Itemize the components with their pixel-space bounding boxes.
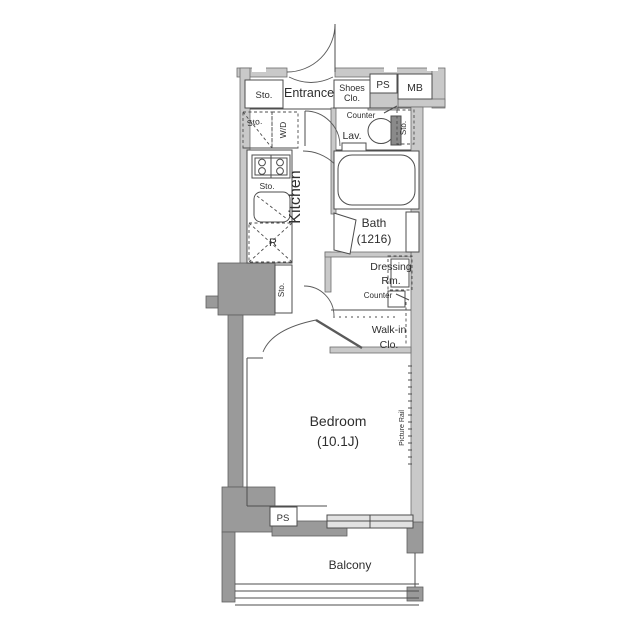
bathtub-outer xyxy=(334,151,419,209)
balcony-label: Balcony xyxy=(329,558,372,572)
entrance-threshold-curve xyxy=(289,77,333,83)
pillar-right-balcony xyxy=(407,587,423,601)
walkin-label-1: Walk-in xyxy=(372,324,407,336)
bath-size-label: (1216) xyxy=(357,232,392,246)
bath-label: Bath xyxy=(362,216,387,230)
walkin-bottom-wall xyxy=(330,347,411,353)
ps-bottom-label: PS xyxy=(277,513,290,524)
dressing-top-wall xyxy=(325,252,411,257)
dressing-counter-label: Counter xyxy=(364,291,393,300)
bedroom-label: Bedroom xyxy=(310,413,367,429)
shoes-closet-label-1: Shoes xyxy=(339,83,365,93)
picture-rail-label: Picture Rail xyxy=(399,410,406,446)
wall-notch xyxy=(384,66,397,72)
pillar-left-notch xyxy=(206,296,218,308)
wall-notch xyxy=(427,66,438,71)
ps-top-label: PS xyxy=(376,80,390,91)
mb-bottom-wall xyxy=(398,99,445,107)
lav-label: Lav. xyxy=(342,130,361,142)
fridge-label: R xyxy=(269,237,277,249)
bedroom-size-label: (10.1J) xyxy=(317,434,359,449)
storage-kitchen-label: Sto. xyxy=(259,181,274,191)
mb-label: MB xyxy=(407,82,423,94)
walkin-door-arc xyxy=(263,320,316,352)
pillars xyxy=(206,263,423,602)
floor-plan-page: Sto. Entrance Shoes Clo. PS MB Sto. W/D … xyxy=(0,0,640,639)
dressing-label-2: Rm. xyxy=(381,275,400,287)
walkin-label-2: Clo. xyxy=(380,339,399,351)
balcony-left-wall xyxy=(222,532,235,602)
storage-top-label: Sto. xyxy=(256,90,273,101)
toilet-bowl xyxy=(368,119,394,144)
storage-row2-label: Sto. xyxy=(246,116,263,128)
lav-counter-label: Counter xyxy=(347,111,376,120)
pillar-left-bottom xyxy=(222,487,275,532)
entrance-area xyxy=(245,24,432,108)
entrance-door-arc xyxy=(287,24,335,72)
bath-folding-door xyxy=(334,213,356,254)
left-mid-wall xyxy=(228,315,243,487)
kitchen-label: Kitchen xyxy=(287,170,304,223)
floor-plan-drawing: Sto. Entrance Shoes Clo. PS MB Sto. W/D … xyxy=(0,0,640,639)
entrance-label: Entrance xyxy=(284,86,334,100)
pillar-left xyxy=(218,263,275,315)
storage-strip-label: Sto. xyxy=(277,283,286,297)
wall-notch xyxy=(252,66,266,72)
balcony-railing xyxy=(235,584,419,605)
dressing-label-1: Dressing xyxy=(370,261,412,273)
washer-dryer-label: W/D xyxy=(278,122,288,139)
shoes-closet-label-2: Clo. xyxy=(344,93,360,103)
walkin-door-leaf xyxy=(316,320,362,348)
dressing-left-wall xyxy=(325,252,331,292)
storage-lav-label: Sto. xyxy=(399,121,408,135)
bath-ledge xyxy=(406,212,419,252)
